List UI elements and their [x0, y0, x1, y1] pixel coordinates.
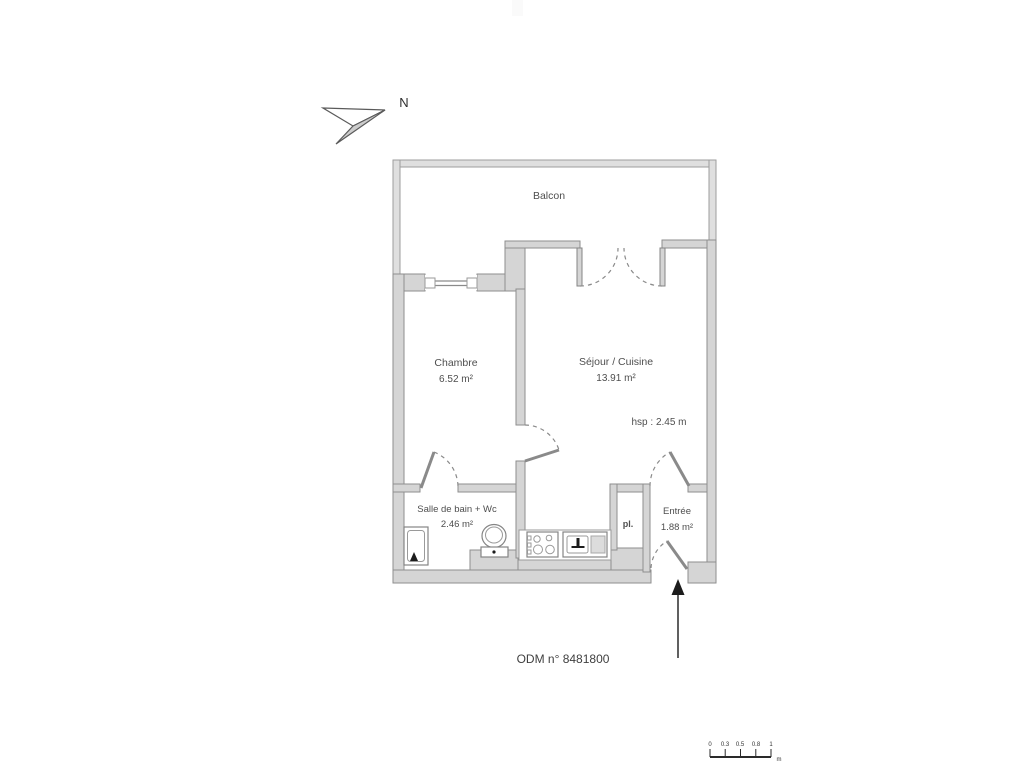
sink-icon [563, 532, 607, 557]
scale-tick-4: 1 [769, 742, 773, 748]
entrance-arrow-icon [672, 579, 685, 658]
room-area-chambre: 6.52 m² [439, 374, 474, 385]
scale-unit: m [777, 757, 782, 763]
room-area-sejour: 13.91 m² [596, 373, 636, 384]
kitchen-counter [519, 530, 611, 560]
floor-plan-page: N [0, 0, 1024, 768]
scale-tick-3: 0.8 [752, 742, 761, 748]
north-arrow-icon [323, 108, 385, 144]
window-icon [425, 275, 477, 290]
balcony-railing [393, 160, 716, 282]
entree-inner-door-icon [650, 452, 689, 486]
balcony-french-door-icon [577, 248, 665, 286]
chambre-door-icon [525, 425, 559, 461]
room-label-chambre: Chambre [434, 357, 477, 369]
room-label-placard: pl. [623, 519, 634, 529]
room-area-salle-de-bain: 2.46 m² [441, 519, 473, 530]
toilet-icon [481, 525, 508, 558]
shower-icon [404, 527, 428, 565]
entrance-door-icon [651, 541, 687, 569]
room-label-entree: Entrée [663, 506, 691, 517]
floor-plan-drawing: N [0, 0, 1024, 768]
room-label-salle-de-bain: Salle de bain + Wc [417, 504, 497, 515]
plan-reference: ODM n° 8481800 [517, 652, 610, 666]
scan-artifact [512, 0, 523, 16]
scale-tick-0: 0 [708, 742, 712, 748]
stove-icon [527, 532, 558, 557]
room-label-balcon: Balcon [533, 190, 565, 202]
north-label: N [399, 95, 408, 110]
scale-tick-1: 0.3 [721, 742, 730, 748]
room-label-sejour: Séjour / Cuisine [579, 356, 653, 368]
bathroom-door-icon [421, 452, 458, 488]
ceiling-height-label: hsp : 2.45 m [631, 417, 686, 428]
scale-tick-2: 0.5 [736, 742, 745, 748]
room-area-entree: 1.88 m² [661, 522, 693, 533]
scale-bar: 0 0.3 0.5 0.8 1 m [708, 742, 781, 763]
